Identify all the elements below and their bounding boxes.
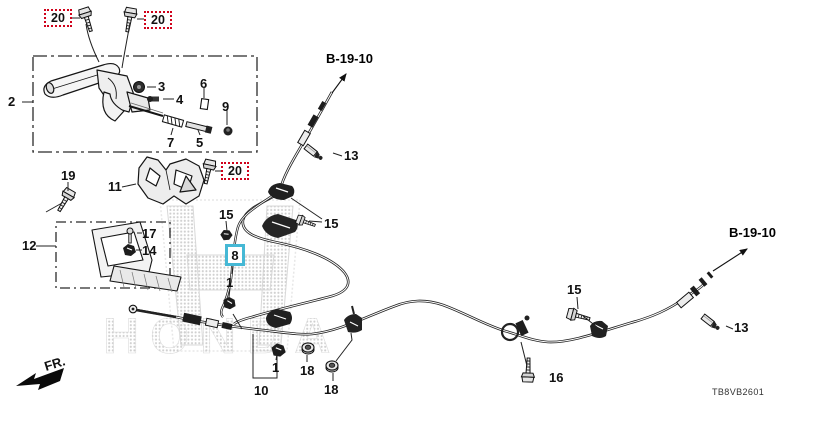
part-label-2: 2 [8, 95, 15, 108]
reference-arrows [332, 74, 747, 271]
part-label-12: 12 [22, 239, 36, 252]
part-callout-8-label: 8 [231, 248, 238, 263]
part-label-13-a: 13 [344, 149, 358, 162]
part-callout-20-a-label: 20 [51, 11, 65, 25]
part-label-11: 11 [108, 180, 122, 193]
parts-diagram: HONDA [0, 0, 813, 427]
part-label-14: 14 [142, 244, 156, 257]
part-callout-20-a[interactable]: 20 [44, 9, 72, 27]
part-label-15-c: 15 [567, 283, 581, 296]
part-label-17: 17 [142, 227, 156, 240]
nut-18-a [302, 343, 314, 354]
part-label-3: 3 [158, 80, 165, 93]
front-marker-label: FR. [42, 353, 66, 373]
part-callout-20-c-label: 20 [228, 164, 242, 178]
front-arrow-icon [16, 368, 64, 390]
bolt-15-mid [295, 214, 317, 230]
part-label-13-b: 13 [734, 321, 748, 334]
part-label-6: 6 [200, 77, 207, 90]
part-callout-20-b[interactable]: 20 [144, 11, 172, 29]
ref-link-top[interactable]: B-19-10 [326, 51, 373, 66]
nut-18-b [326, 361, 338, 372]
cable-fittings [129, 101, 721, 332]
part-label-4: 4 [176, 93, 183, 106]
part-label-7: 7 [167, 136, 174, 149]
diagram-line-art: HONDA [0, 0, 813, 427]
part-callout-20-c[interactable]: 20 [221, 162, 249, 180]
front-direction-marker: FR. [16, 353, 67, 390]
bracket-drawing [138, 157, 204, 204]
bolt-19 [53, 187, 76, 214]
part-label-15-a: 15 [219, 208, 233, 221]
part-label-10: 10 [254, 384, 268, 397]
console-drawing [92, 222, 181, 292]
part-label-16: 16 [549, 371, 563, 384]
part-label-18-a: 18 [300, 364, 314, 377]
bolt-15-right [566, 307, 591, 325]
part-label-1-a: 1 [226, 276, 233, 289]
bolt-16 [521, 358, 535, 382]
part-label-1-b: 1 [272, 361, 279, 374]
brake-lever-drawing [44, 64, 163, 121]
joint-13-top [304, 144, 324, 162]
ref-link-right[interactable]: B-19-10 [729, 225, 776, 240]
joint-13-right [701, 314, 721, 332]
part-label-9: 9 [222, 100, 229, 113]
part-label-5: 5 [196, 136, 203, 149]
part-label-19: 19 [61, 169, 75, 182]
part-label-18-b: 18 [324, 383, 338, 396]
part-callout-20-b-label: 20 [151, 13, 165, 27]
part-callout-8-selected[interactable]: 8 [225, 244, 245, 266]
part-label-15-b: 15 [324, 217, 338, 230]
diagram-code: TB8VB2601 [712, 387, 764, 397]
